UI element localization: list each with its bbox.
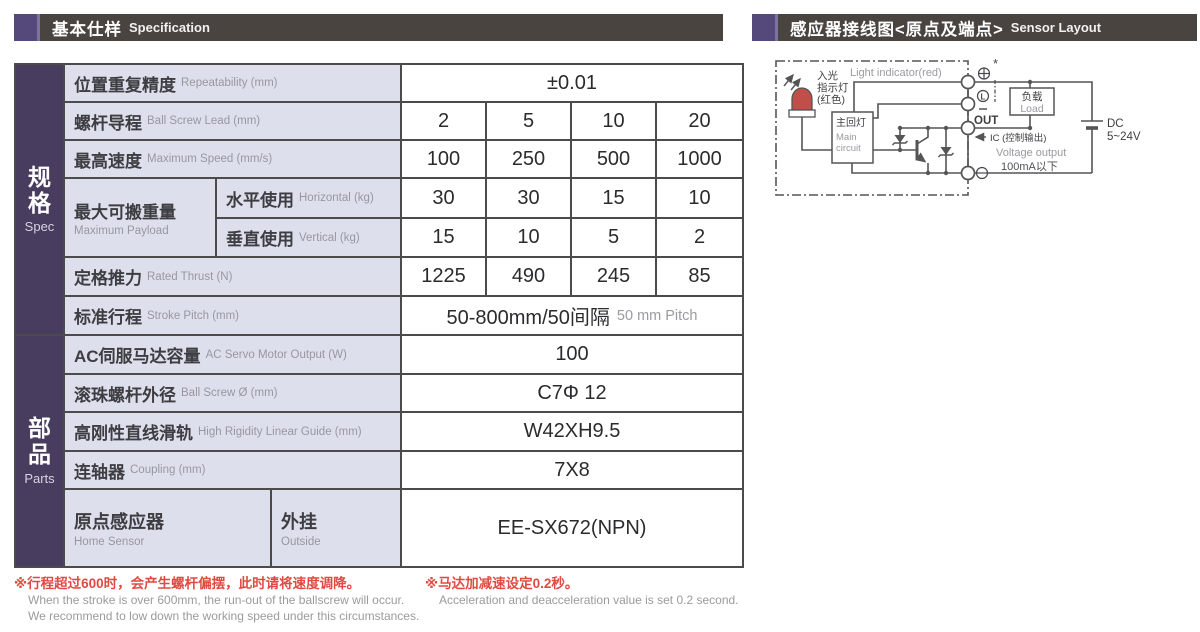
voltage-output-label: Voltage output — [996, 147, 1066, 159]
sensor-layout-section-header: 感应器接线图<原点及端点> Sensor Layout — [752, 14, 1197, 41]
coupling-value: 7X8 — [402, 452, 742, 490]
load-label-zh: 负载 — [1022, 90, 1044, 103]
vertical-value-2: 10 — [487, 219, 572, 258]
guide-label-en: High Rigidity Linear Guide (mm) — [198, 426, 362, 438]
row-horizontal-label: 水平使用 Horizontal (kg) — [217, 179, 402, 219]
vertical-label-zh: 垂直使用 — [226, 225, 294, 250]
spec-section-header: 基本仕样 Specification — [14, 14, 723, 41]
vertical-value-3: 5 — [572, 219, 657, 258]
repeatability-label-en: Repeatability (mm) — [181, 77, 278, 89]
speed-value-2: 250 — [487, 141, 572, 179]
spec-header-title-zh: 基本仕样 — [52, 16, 122, 40]
row-ball-screw-dia-label: 滚珠螺杆外径 Ball Screw Ø (mm) — [65, 375, 402, 413]
note2-zh: ※马达加减速设定0.2秒。 — [425, 575, 739, 592]
npn-transistor-icon — [917, 140, 925, 162]
note2-en: Acceleration and deacceleration value is… — [425, 592, 739, 608]
row-coupling-label: 连轴器 Coupling (mm) — [65, 452, 402, 490]
row-rated-thrust-label: 定格推力 Rated Thrust (N) — [65, 258, 402, 297]
sensor-header-title-zh: 感应器接线图<原点及端点> — [790, 16, 1004, 40]
zener-diode-icon — [893, 135, 908, 145]
horizontal-value-3: 15 — [572, 179, 657, 219]
stroke-value-zh: 50-800mm/50间隔 — [447, 301, 610, 330]
note1-en-line1: When the stroke is over 600mm, the run-o… — [14, 592, 419, 608]
row-stroke-label: 标准行程 Stroke Pitch (mm) — [65, 297, 402, 336]
horizontal-label-en: Horizontal (kg) — [299, 192, 374, 204]
light-ray-arrow-icon — [784, 75, 793, 86]
thrust-label-zh: 定格推力 — [74, 264, 142, 289]
main-circuit-en2: circuit — [836, 143, 861, 154]
row-ball-screw-lead-label: 螺杆导程 Ball Screw Lead (mm) — [65, 103, 402, 141]
row-max-speed-label: 最高速度 Maximum Speed (mm/s) — [65, 141, 402, 179]
light-indicator-label: Light indicator(red) — [850, 67, 942, 79]
lead-value-2: 5 — [487, 103, 572, 141]
home-sensor-value: EE-SX672(NPN) — [402, 490, 742, 566]
zener-diode-icon — [939, 147, 954, 157]
vertical-value-4: 2 — [657, 219, 742, 258]
terminal-minus — [962, 167, 975, 180]
speed-value-3: 500 — [572, 141, 657, 179]
guide-label-zh: 高刚性直线滑轨 — [74, 419, 193, 444]
lead-label-en: Ball Screw Lead (mm) — [147, 115, 260, 127]
dc-label-line2: 5~24V — [1107, 131, 1141, 143]
terminal-l — [962, 98, 975, 111]
sidebar-spec-zh: 规格 — [25, 165, 55, 217]
repeatability-value: ±0.01 — [402, 65, 742, 103]
terminal-out — [962, 122, 975, 135]
home-sensor-label-en: Home Sensor — [74, 536, 144, 548]
linear-guide-value: W42XH9.5 — [402, 413, 742, 452]
page: 基本仕样 Specification 感应器接线图<原点及端点> Sensor … — [0, 0, 1200, 632]
header-accent-square — [752, 14, 778, 41]
sensor-wiring-diagram: 入光 指示灯 (红色) Light indicator(red) 主回灯 Mai… — [770, 52, 1200, 204]
horizontal-value-4: 10 — [657, 179, 742, 219]
lead-value-1: 2 — [402, 103, 487, 141]
speed-value-1: 100 — [402, 141, 487, 179]
l-terminal-symbol: L — [978, 91, 989, 110]
sidebar-group-spec: 规格 Spec — [16, 65, 65, 336]
horizontal-value-1: 30 — [402, 179, 487, 219]
servo-label-en: AC Servo Motor Output (W) — [206, 349, 347, 361]
led-label-zh-3: (红色) — [817, 93, 845, 106]
spec-table: 规格 Spec 部品 Parts 位置重复精度 Repeatability (m… — [14, 63, 744, 568]
dia-label-en: Ball Screw Ø (mm) — [181, 387, 277, 399]
ic-label: IC (控制输出) — [990, 132, 1046, 144]
row-repeatability-label: 位置重复精度 Repeatability (mm) — [65, 65, 402, 103]
main-circuit-en1: Main — [836, 132, 857, 143]
horizontal-value-2: 30 — [487, 179, 572, 219]
plus-terminal-symbol — [979, 68, 990, 79]
speed-label-en: Maximum Speed (mm/s) — [147, 153, 272, 165]
outside-label-zh: 外挂 — [281, 508, 317, 534]
led-label-zh-1: 入光 — [817, 69, 838, 82]
sidebar-group-parts: 部品 Parts — [16, 336, 65, 566]
row-max-payload-label: 最大可搬重量 Maximum Payload — [65, 179, 217, 258]
note1-zh: ※行程超过600时，会产生螺杆偏摆，此时请将速度调降。 — [14, 575, 419, 592]
payload-label-en: Maximum Payload — [74, 225, 169, 237]
current-limit-label: 100mA以下 — [1001, 161, 1058, 173]
sidebar-spec-en: Spec — [25, 219, 55, 234]
asterisk-mark: * — [993, 56, 998, 71]
coupling-label-zh: 连轴器 — [74, 458, 125, 483]
thrust-value-4: 85 — [657, 258, 742, 297]
dc-label-line1: DC — [1107, 118, 1124, 130]
stroke-label-zh: 标准行程 — [74, 303, 142, 328]
sensor-header-title-en: Sensor Layout — [1011, 20, 1101, 35]
spec-header-title-en: Specification — [129, 20, 210, 35]
terminal-plus — [962, 76, 975, 89]
stroke-label-en: Stroke Pitch (mm) — [147, 310, 239, 322]
thrust-value-3: 245 — [572, 258, 657, 297]
lead-value-3: 10 — [572, 103, 657, 141]
main-circuit-zh: 主回灯 — [836, 117, 866, 129]
row-home-sensor-label: 原点感应器 Home Sensor — [65, 490, 272, 566]
lead-value-4: 20 — [657, 103, 742, 141]
stroke-value: 50-800mm/50间隔 50 mm Pitch — [402, 297, 742, 336]
note1-en-line2: We recommend to low down the working spe… — [14, 608, 419, 624]
speed-value-4: 1000 — [657, 141, 742, 179]
load-label-en: Load — [1020, 103, 1044, 115]
row-vertical-label: 垂直使用 Vertical (kg) — [217, 219, 402, 258]
stroke-value-en: 50 mm Pitch — [617, 308, 698, 324]
header-accent-square — [14, 14, 40, 41]
vertical-value-1: 15 — [402, 219, 487, 258]
home-sensor-label-zh: 原点感应器 — [74, 508, 164, 534]
thrust-value-1: 1225 — [402, 258, 487, 297]
coupling-label-en: Coupling (mm) — [130, 464, 205, 476]
ball-screw-dia-value: C7Φ 12 — [402, 375, 742, 413]
servo-output-value: 100 — [402, 336, 742, 375]
dia-label-zh: 滚珠螺杆外径 — [74, 381, 176, 406]
speed-label-zh: 最高速度 — [74, 147, 142, 172]
servo-label-zh: AC伺服马达容量 — [74, 342, 201, 367]
thrust-label-en: Rated Thrust (N) — [147, 271, 232, 283]
sidebar-parts-en: Parts — [24, 471, 54, 486]
row-outside-label: 外挂 Outside — [272, 490, 402, 566]
vertical-label-en: Vertical (kg) — [299, 232, 360, 244]
led-indicator-icon — [784, 75, 815, 117]
out-terminal-label: OUT — [974, 115, 998, 127]
minus-terminal-symbol — [977, 168, 988, 179]
repeatability-label-zh: 位置重复精度 — [74, 71, 176, 96]
note-acceleration: ※马达加减速设定0.2秒。 Acceleration and deacceler… — [425, 575, 739, 608]
horizontal-label-zh: 水平使用 — [226, 186, 294, 211]
led-label-zh-2: 指示灯 — [817, 81, 849, 94]
battery-icon — [1081, 121, 1103, 128]
payload-label-zh: 最大可搬重量 — [74, 198, 176, 223]
note-stroke-warning: ※行程超过600时，会产生螺杆偏摆，此时请将速度调降。 When the str… — [14, 575, 419, 624]
outside-label-en: Outside — [281, 536, 321, 548]
lead-label-zh: 螺杆导程 — [74, 109, 142, 134]
svg-text:L: L — [981, 93, 986, 102]
thrust-value-2: 490 — [487, 258, 572, 297]
sidebar-parts-zh: 部品 — [25, 416, 55, 468]
row-servo-output-label: AC伺服马达容量 AC Servo Motor Output (W) — [65, 336, 402, 375]
row-linear-guide-label: 高刚性直线滑轨 High Rigidity Linear Guide (mm) — [65, 413, 402, 452]
